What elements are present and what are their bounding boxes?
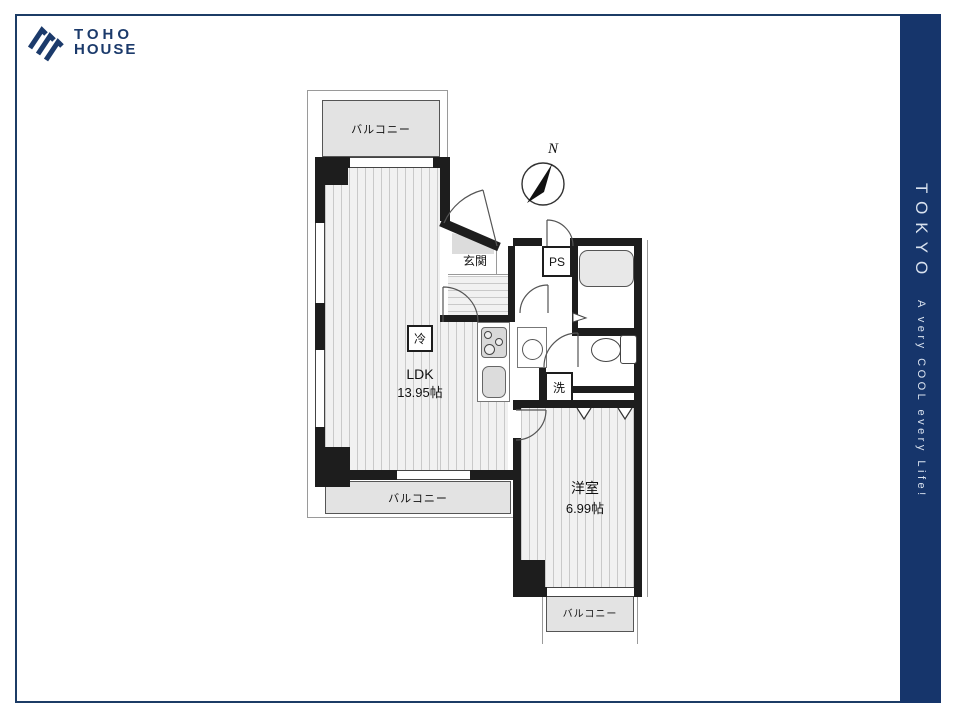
window <box>315 223 325 303</box>
outline-line <box>447 90 448 157</box>
outline-line <box>307 517 514 518</box>
ldk-label: LDK 13.95帖 <box>390 366 450 401</box>
balcony-top: バルコニー <box>322 100 440 157</box>
balcony-top-label: バルコニー <box>351 121 411 137</box>
door-opening <box>513 410 521 438</box>
washer-box: 洗 <box>545 372 573 402</box>
kitchen-sink <box>482 366 506 398</box>
wall <box>440 157 450 221</box>
toilet-door-arc <box>544 333 578 367</box>
entrance-label: 玄関 <box>450 252 500 269</box>
wall <box>315 447 350 487</box>
outline-line <box>637 589 638 644</box>
floor-plan: バルコニー バルコニー バルコニー PS 冷 洗 <box>0 0 960 720</box>
balcony-ldk-label: バルコニー <box>388 490 448 506</box>
washroom-door-arc <box>520 285 548 313</box>
window <box>315 350 325 427</box>
west-room-name: 洋室 <box>550 478 620 498</box>
pipe-space-label: PS <box>549 255 565 269</box>
outline-line <box>542 589 543 644</box>
fridge-label: 冷 <box>414 330 426 347</box>
entrance-step-line <box>448 274 508 275</box>
outline-line <box>647 240 648 597</box>
ldk-floor <box>325 168 440 470</box>
fridge-box: 冷 <box>407 325 433 352</box>
wall <box>440 315 515 322</box>
wall <box>572 246 578 328</box>
west-room-label: 洋室 6.99帖 <box>550 478 620 517</box>
stove-burner <box>484 331 492 339</box>
window <box>397 470 470 480</box>
toilet-tank <box>620 335 637 364</box>
bathtub <box>579 250 634 287</box>
stove-burner <box>495 338 503 346</box>
outline-line <box>307 90 448 91</box>
balcony-west: バルコニー <box>546 592 634 632</box>
wall <box>315 157 325 487</box>
hall-floor <box>448 276 508 315</box>
wall <box>634 238 642 597</box>
wall <box>315 157 348 185</box>
ldk-name: LDK <box>390 366 450 382</box>
washer-label: 洗 <box>553 379 565 396</box>
compass-needle-icon <box>527 164 552 203</box>
ldk-size: 13.95帖 <box>390 382 450 401</box>
window <box>547 587 634 597</box>
wall <box>513 238 642 246</box>
balcony-ldk: バルコニー <box>325 481 511 514</box>
compass-circle <box>522 163 564 205</box>
entrance-tile <box>452 224 494 254</box>
outline-line <box>307 90 308 518</box>
vanity-basin <box>522 339 543 360</box>
north-label: N <box>548 141 558 158</box>
door-opening <box>542 238 570 246</box>
pipe-space-box: PS <box>542 246 572 277</box>
stove-burner <box>484 344 495 355</box>
toilet-bowl <box>591 338 621 362</box>
wall <box>508 246 515 322</box>
wall <box>572 386 642 393</box>
wall <box>513 400 642 408</box>
window <box>350 157 433 168</box>
balcony-west-label: バルコニー <box>563 605 618 620</box>
closet-strip <box>578 393 632 400</box>
west-room-size: 6.99帖 <box>550 498 620 517</box>
